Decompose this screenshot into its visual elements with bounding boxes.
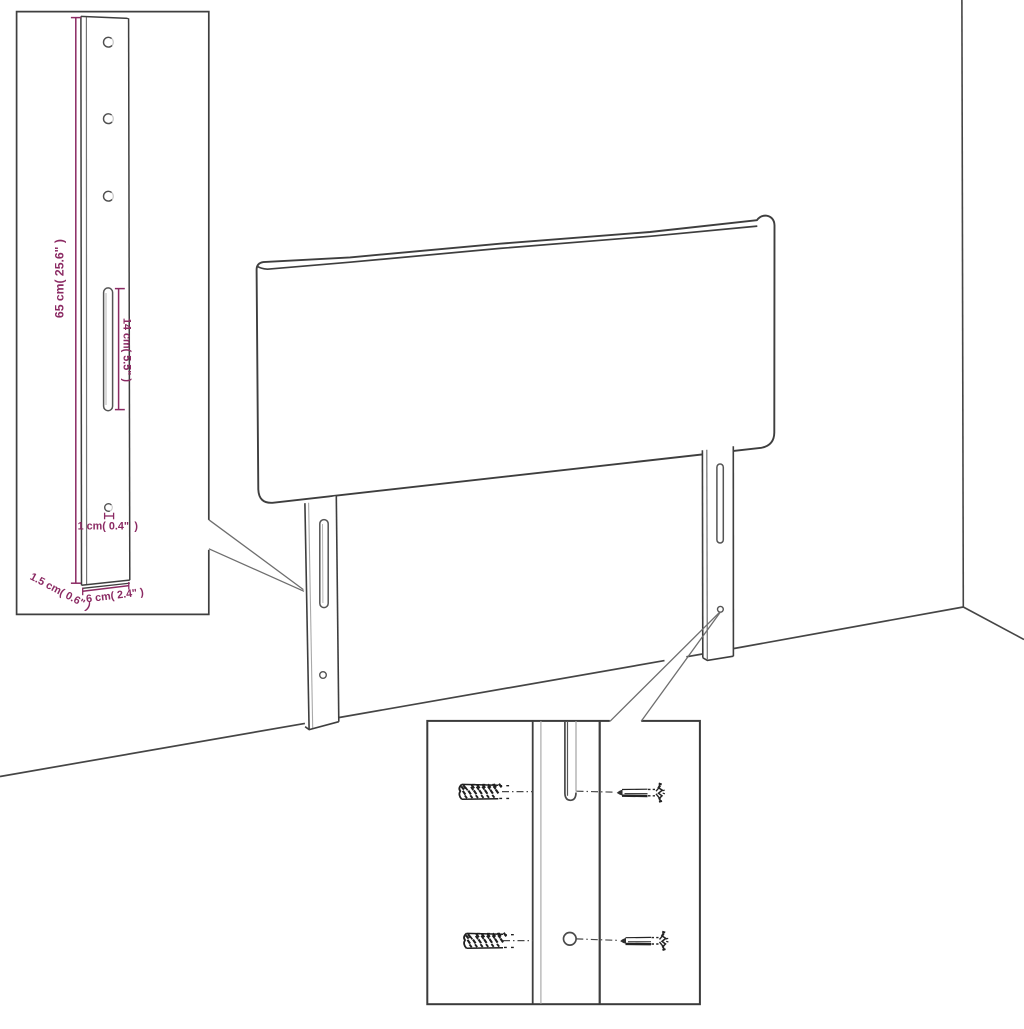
svg-text:14 cm( 5.5" ): 14 cm( 5.5" ) (121, 318, 133, 382)
svg-text:1 cm( 0.4" ): 1 cm( 0.4" ) (78, 520, 139, 532)
svg-text:65 cm( 25.6" ): 65 cm( 25.6" ) (53, 239, 67, 318)
